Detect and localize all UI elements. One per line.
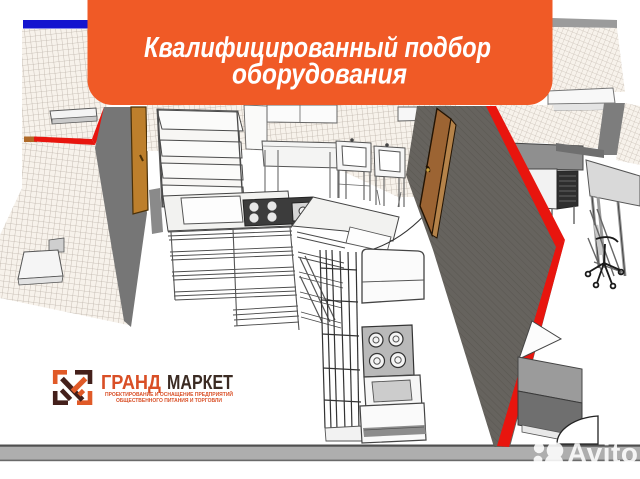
svg-text:ОБЩЕСТВЕННОГО ПИТАНИЯ И ТОРГОВ: ОБЩЕСТВЕННОГО ПИТАНИЯ И ТОРГОВЛИ [116,398,222,404]
svg-text:МАРКЕТ: МАРКЕТ [167,372,233,394]
svg-text:оборудования: оборудования [232,59,407,91]
svg-text:ПРОЕКТИРОВАНИЕ И ОСНАЩЕНИЕ ПРЕ: ПРОЕКТИРОВАНИЕ И ОСНАЩЕНИЕ ПРЕДПРИЯТИЙ [105,390,233,398]
svg-text:Avito: Avito [567,438,638,469]
svg-text:ГРАНД: ГРАНД [101,372,161,394]
